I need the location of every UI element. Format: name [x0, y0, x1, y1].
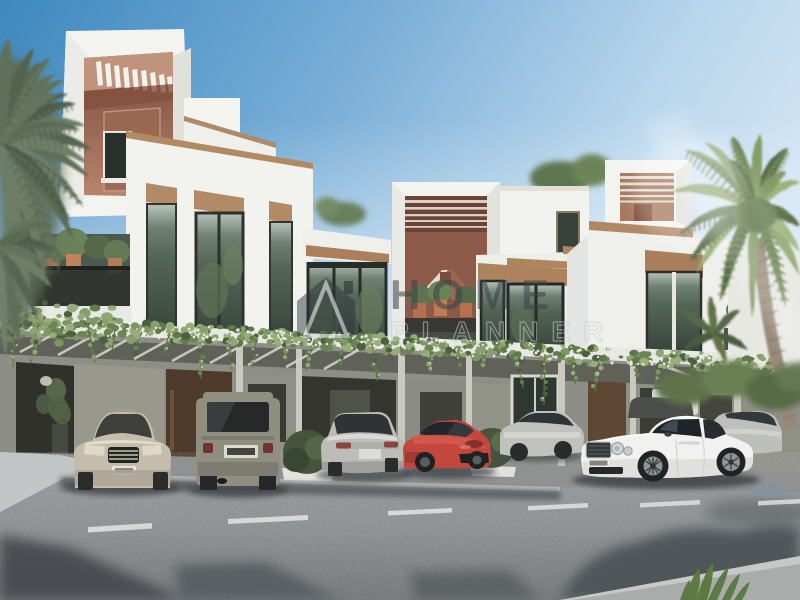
svg-text:HOME: HOME	[390, 271, 560, 318]
svg-text:PLANNER: PLANNER	[390, 316, 616, 347]
